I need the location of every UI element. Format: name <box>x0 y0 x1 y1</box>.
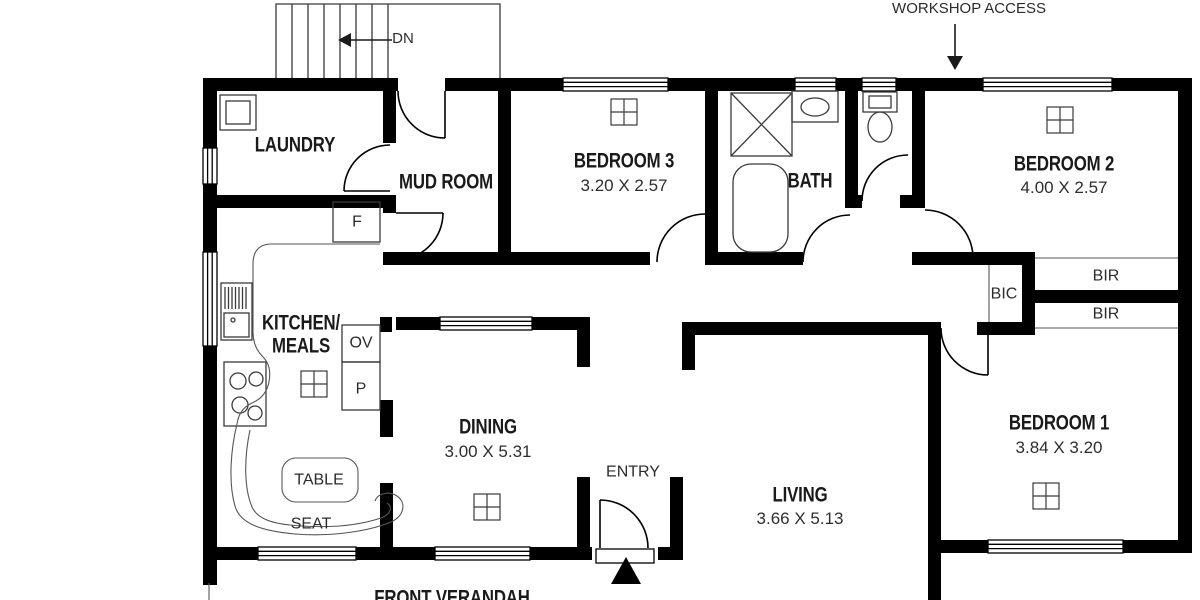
workshop-access-arrow-icon <box>947 24 963 70</box>
workshop-access-label: WORKSHOP ACCESS <box>892 1 1046 17</box>
room-dims-bedroom1: 3.84 X 3.20 <box>1016 439 1103 457</box>
room-label-laundry: LAUNDRY <box>245 135 345 158</box>
window-bottom-bedroom1 <box>988 540 1123 553</box>
bath-basin-symbol <box>792 91 838 122</box>
seat-label: SEAT <box>291 515 332 532</box>
door-entry <box>596 500 654 563</box>
window-top-bath-2 <box>862 78 896 91</box>
window-top-dining <box>440 317 532 330</box>
light-symbols <box>301 99 1073 520</box>
stairs-down-label: DN <box>392 31 414 47</box>
oven-label: OV <box>349 334 372 351</box>
door-bath <box>803 215 850 262</box>
stairs <box>276 4 500 78</box>
window-bottom-dining <box>435 547 530 560</box>
window-bottom-meals <box>258 547 356 560</box>
door-mudroom-exterior <box>398 91 445 138</box>
room-dims-dining: 3.00 X 5.31 <box>445 443 532 461</box>
light-symbol-bedroom1 <box>1033 483 1059 509</box>
room-label-bedroom1: BEDROOM 1 <box>996 413 1121 436</box>
door-laundry <box>344 145 390 191</box>
front-verandah-label: FRONT VERANDAH <box>355 588 549 600</box>
room-label-kitchen-meals: KITCHEN/MEALS <box>252 312 350 357</box>
room-label-bedroom2: BEDROOM 2 <box>1001 154 1126 177</box>
stove-symbol <box>224 362 266 426</box>
stairs-down-arrow-icon <box>338 33 392 47</box>
room-label-bedroom3: BEDROOM 3 <box>561 151 686 174</box>
room-dims-bedroom3: 3.20 X 2.57 <box>581 177 668 195</box>
door-wc <box>862 155 908 201</box>
kitchen-bench-line <box>231 244 403 535</box>
door-bedroom2 <box>925 210 973 258</box>
light-symbol-bedroom2 <box>1047 107 1073 133</box>
room-label-dining: DINING <box>452 417 524 440</box>
kitchen-sink-symbol <box>221 283 252 340</box>
bir1-label: BIR <box>1093 267 1120 284</box>
entry-label: ENTRY <box>606 463 660 480</box>
light-symbol-dining <box>474 494 500 520</box>
floor-plan-drawing <box>0 0 1200 600</box>
window-left-kitchen <box>203 252 217 346</box>
window-top-bedroom2 <box>983 78 1112 91</box>
window-left-laundry <box>203 148 217 184</box>
light-symbol-kitchen <box>301 371 327 397</box>
bir2-label: BIR <box>1093 305 1120 322</box>
room-label-living: LIVING <box>766 485 835 508</box>
door-bedroom3 <box>657 214 705 262</box>
toilet-symbol <box>863 92 897 142</box>
pantry-label: P <box>356 380 367 397</box>
room-dims-bedroom2: 4.00 X 2.57 <box>1021 179 1108 197</box>
room-dims-living: 3.66 X 5.13 <box>757 510 844 528</box>
light-symbol-bedroom3 <box>611 99 637 125</box>
window-top-bath-1 <box>795 78 836 91</box>
table-label: TABLE <box>294 471 344 488</box>
fridge-label: F <box>352 213 362 230</box>
door-bedroom1 <box>941 328 988 375</box>
room-label-mud-room: MUD ROOM <box>387 172 504 195</box>
floor-plan: WORKSHOP ACCESS DN LAUNDRY MUD ROOM BEDR… <box>0 0 1200 600</box>
bic-label: BIC <box>991 285 1018 302</box>
bathtub-symbol <box>733 164 788 252</box>
window-top-bedroom3 <box>563 78 668 91</box>
room-label-bath: BATH <box>782 171 838 194</box>
shower-symbol <box>731 93 792 156</box>
laundry-trough-symbol <box>220 95 256 130</box>
